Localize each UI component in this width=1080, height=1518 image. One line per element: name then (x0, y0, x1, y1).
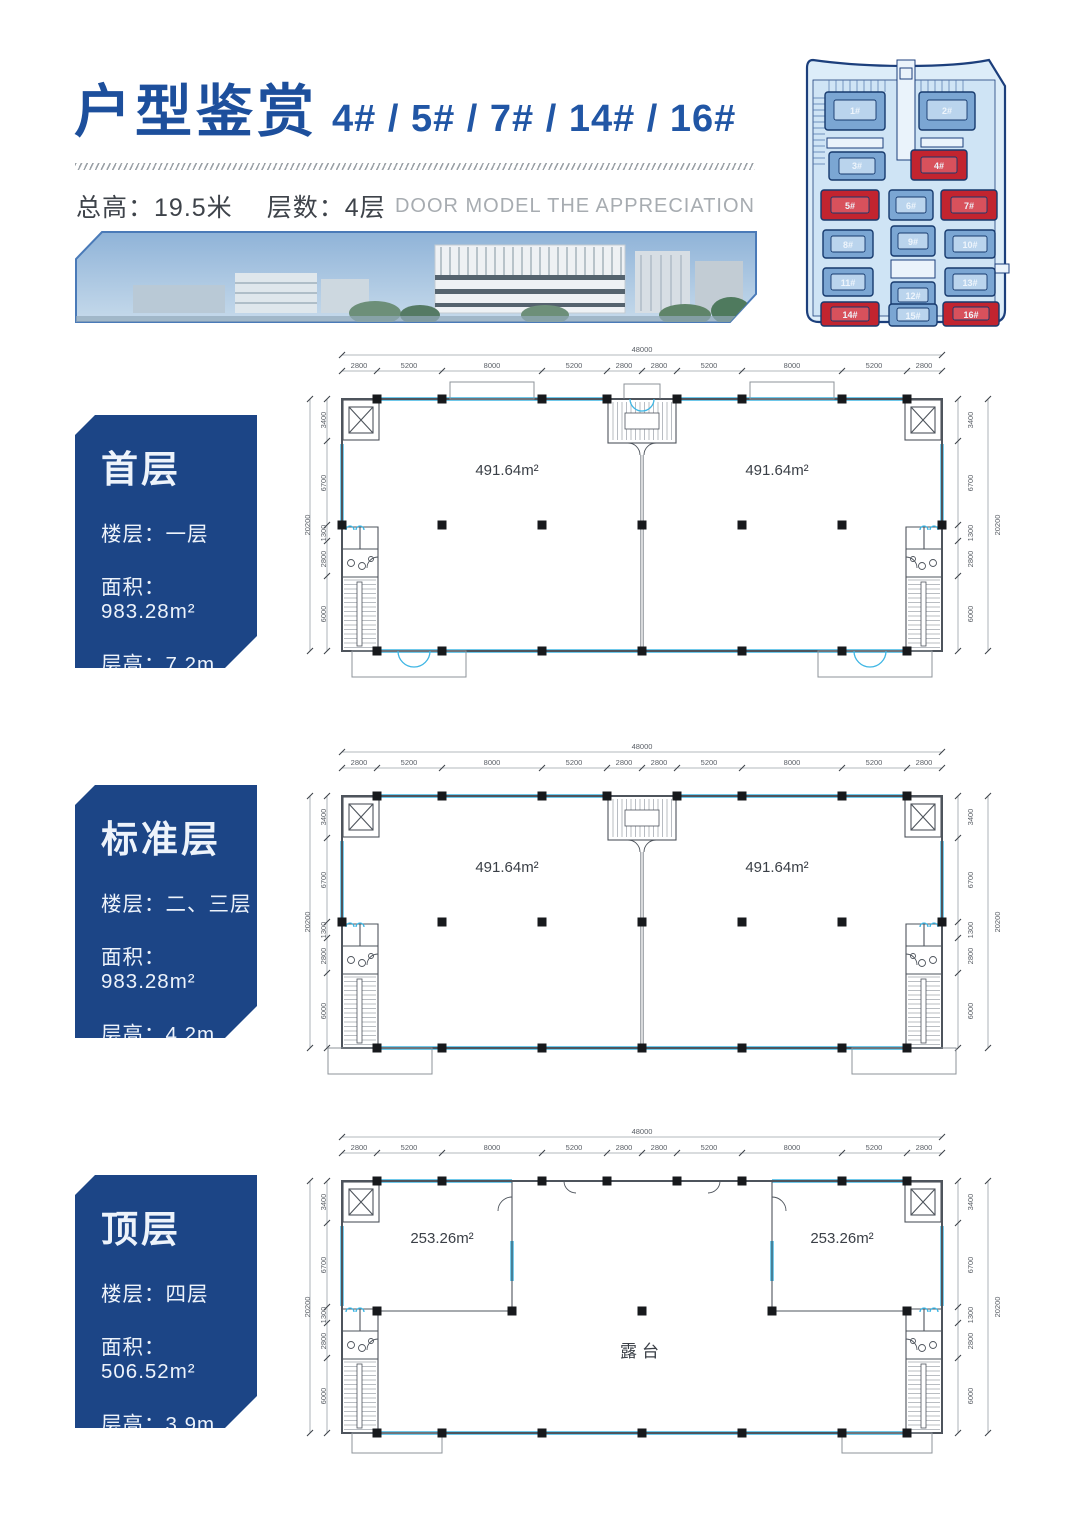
svg-text:6000: 6000 (319, 1003, 328, 1020)
columns (373, 1177, 912, 1438)
siteplan-building: 11# (823, 268, 873, 296)
svg-text:6000: 6000 (966, 1003, 975, 1020)
siteplan-building: 16# (943, 302, 999, 326)
svg-text:14#: 14# (842, 310, 857, 320)
svg-text:8000: 8000 (784, 361, 801, 370)
svg-text:48000: 48000 (632, 742, 653, 751)
svg-text:48000: 48000 (632, 1127, 653, 1136)
floor-card-standard: 标准层 楼层：二、三层 面积：983.28m² 层高：4.2m (75, 785, 257, 1038)
svg-text:8#: 8# (843, 240, 853, 250)
siteplan-building: 5# (821, 190, 879, 220)
svg-text:15#: 15# (905, 311, 920, 321)
siteplan-building: 4# (911, 150, 967, 180)
svg-text:8000: 8000 (484, 758, 501, 767)
svg-text:3400: 3400 (319, 412, 328, 429)
elevator-icon (905, 400, 941, 440)
stair-core-icon (608, 399, 676, 455)
svg-text:3#: 3# (852, 161, 862, 171)
elevator-icon (343, 400, 379, 440)
svg-text:6000: 6000 (319, 606, 328, 623)
svg-text:1300: 1300 (966, 1307, 975, 1324)
svg-text:13#: 13# (962, 278, 977, 288)
svg-text:2800: 2800 (319, 551, 328, 568)
floor-line: 楼层：四层 (101, 1277, 257, 1307)
svg-text:8000: 8000 (784, 758, 801, 767)
svg-text:9#: 9# (908, 237, 918, 247)
height-line: 层高：4.2m (101, 1017, 257, 1047)
svg-text:2800: 2800 (966, 1333, 975, 1350)
svg-text:5200: 5200 (701, 361, 718, 370)
area-line: 面积：506.52m² (101, 1330, 257, 1384)
dimensions: 48000 2800 5200 8000 5200 2800 2800 5200… (303, 345, 1002, 654)
elevator-icon (905, 1182, 941, 1222)
svg-text:5200: 5200 (401, 1143, 418, 1152)
svg-text:6000: 6000 (966, 606, 975, 623)
svg-text:2800: 2800 (966, 948, 975, 965)
floor-card-title: 首层 (101, 439, 257, 493)
siteplan-building: 8# (823, 230, 873, 258)
svg-text:2800: 2800 (319, 1333, 328, 1350)
svg-text:7#: 7# (964, 201, 974, 211)
site-plan: 1# 2# 3# 4# 5# 6# 7# 8# 9# 10# 11# 12# 1… (799, 52, 1011, 330)
plan-drawing-first: 491.64m² 491.64m² (338, 382, 947, 677)
stairs-icon (344, 976, 940, 1046)
brochure-page: 户型鉴赏 4# / 5# / 7# / 14# / 16# 总高：19.5米层数… (0, 0, 1080, 1518)
svg-text:2800: 2800 (651, 1143, 668, 1152)
floor-line: 楼层：一层 (101, 517, 257, 547)
svg-text:2#: 2# (942, 106, 952, 116)
floors-label: 层数： (267, 194, 345, 222)
dimensions: 48000 2800 5200 8000 5200 2800 2800 5200… (303, 1127, 1002, 1436)
floor-plan-first: 48000 2800 5200 8000 5200 2800 2800 5200… (296, 343, 1008, 693)
siteplan-building: 9# (891, 226, 935, 256)
svg-text:3400: 3400 (966, 412, 975, 429)
svg-text:2800: 2800 (651, 361, 668, 370)
area-line: 面积：983.28m² (101, 940, 257, 994)
unit-area-label: 491.64m² (745, 462, 808, 479)
section-divider (62, 1102, 1018, 1108)
unit-area-label: 253.26m² (810, 1230, 873, 1247)
siteplan-building: 2# (919, 92, 975, 130)
hatch-divider (75, 163, 755, 170)
dimensions: 48000 2800 5200 8000 5200 2800 2800 5200… (303, 742, 1002, 1051)
svg-text:2800: 2800 (916, 361, 933, 370)
svg-text:2800: 2800 (351, 1143, 368, 1152)
elevator-icon (905, 797, 941, 837)
svg-text:16#: 16# (963, 310, 978, 320)
svg-text:5200: 5200 (401, 361, 418, 370)
svg-text:20200: 20200 (993, 1297, 1002, 1318)
svg-text:2800: 2800 (966, 551, 975, 568)
svg-text:1#: 1# (850, 106, 860, 116)
svg-text:6000: 6000 (966, 1388, 975, 1405)
elevator-icon (343, 1182, 379, 1222)
siteplan-building: 14# (821, 302, 879, 326)
svg-text:2800: 2800 (616, 1143, 633, 1152)
stairs-icon (344, 1361, 940, 1431)
floor-card-title: 标准层 (101, 809, 257, 863)
svg-text:20200: 20200 (303, 1297, 312, 1318)
svg-text:2800: 2800 (616, 361, 633, 370)
stairs-icon (344, 579, 940, 649)
svg-text:1300: 1300 (319, 525, 328, 542)
english-subtitle: DOOR MODEL THE APPRECIATION (395, 195, 755, 218)
svg-text:8000: 8000 (484, 1143, 501, 1152)
svg-text:5#: 5# (845, 201, 855, 211)
building-meta: 总高：19.5米层数：4层 (76, 188, 386, 224)
plan-drawing-top: 253.26m² 253.26m² 露台 (342, 1177, 942, 1454)
svg-text:3400: 3400 (966, 809, 975, 826)
svg-text:6000: 6000 (319, 1388, 328, 1405)
svg-text:6700: 6700 (966, 872, 975, 889)
svg-text:5200: 5200 (866, 361, 883, 370)
svg-text:3400: 3400 (319, 809, 328, 826)
plan-drawing-standard: 491.64m² 491.64m² (328, 792, 956, 1075)
area-line: 面积：983.28m² (101, 570, 257, 624)
svg-text:2800: 2800 (916, 1143, 933, 1152)
siteplan-building: 7# (941, 190, 997, 220)
floor-card-first: 首层 楼层：一层 面积：983.28m² 层高：7.2m (75, 415, 257, 668)
siteplan-building: 6# (889, 190, 933, 220)
svg-text:2800: 2800 (319, 948, 328, 965)
unit-area-label: 491.64m² (475, 859, 538, 876)
svg-text:6700: 6700 (319, 475, 328, 492)
terrace-label: 露台 (620, 1342, 664, 1361)
building-numbers: 4# / 5# / 7# / 14# / 16# (332, 98, 736, 141)
height-line: 层高：7.2m (101, 647, 257, 677)
floor-line: 楼层：二、三层 (101, 887, 257, 917)
svg-text:2800: 2800 (351, 758, 368, 767)
project-photo (75, 231, 757, 323)
svg-text:2800: 2800 (916, 758, 933, 767)
svg-text:2800: 2800 (616, 758, 633, 767)
svg-text:10#: 10# (962, 240, 977, 250)
stair-core-icon (608, 796, 676, 852)
svg-text:1300: 1300 (966, 525, 975, 542)
svg-text:5200: 5200 (566, 758, 583, 767)
page-title: 户型鉴赏 (74, 66, 318, 148)
svg-text:20200: 20200 (993, 912, 1002, 933)
unit-area-label: 253.26m² (410, 1230, 473, 1247)
svg-text:5200: 5200 (701, 758, 718, 767)
svg-text:20200: 20200 (303, 515, 312, 536)
total-height-label: 总高： (76, 194, 154, 222)
svg-text:1300: 1300 (319, 1307, 328, 1324)
svg-text:20200: 20200 (993, 515, 1002, 536)
floor-plan-top: 48000 2800 5200 8000 5200 2800 2800 5200… (296, 1125, 1008, 1475)
svg-text:8000: 8000 (784, 1143, 801, 1152)
svg-text:20200: 20200 (303, 912, 312, 933)
svg-text:2800: 2800 (351, 361, 368, 370)
siteplan-building: 10# (945, 230, 995, 258)
svg-text:6700: 6700 (319, 1257, 328, 1274)
svg-text:4#: 4# (934, 161, 944, 171)
svg-text:48000: 48000 (632, 345, 653, 354)
svg-text:1300: 1300 (966, 922, 975, 939)
unit-area-label: 491.64m² (475, 462, 538, 479)
svg-text:11#: 11# (841, 278, 856, 288)
svg-text:3400: 3400 (966, 1194, 975, 1211)
svg-text:6700: 6700 (966, 1257, 975, 1274)
floor-plan-standard: 48000 2800 5200 8000 5200 2800 2800 5200… (296, 740, 1008, 1090)
floor-card-top: 顶层 楼层：四层 面积：506.52m² 层高：3.9m (75, 1175, 257, 1428)
siteplan-building: 3# (829, 152, 885, 180)
svg-text:5200: 5200 (566, 1143, 583, 1152)
svg-text:3400: 3400 (319, 1194, 328, 1211)
svg-text:5200: 5200 (866, 758, 883, 767)
siteplan-building: 13# (945, 268, 995, 296)
siteplan-building: 15# (889, 304, 937, 326)
unit-area-label: 491.64m² (745, 859, 808, 876)
svg-text:5200: 5200 (401, 758, 418, 767)
svg-text:5200: 5200 (701, 1143, 718, 1152)
svg-text:2800: 2800 (651, 758, 668, 767)
svg-text:6700: 6700 (319, 872, 328, 889)
floor-card-title: 顶层 (101, 1199, 257, 1253)
floors-value: 4层 (345, 194, 386, 222)
siteplan-building: 1# (825, 92, 885, 130)
svg-text:6#: 6# (906, 201, 916, 211)
svg-text:8000: 8000 (484, 361, 501, 370)
svg-text:5200: 5200 (866, 1143, 883, 1152)
height-line: 层高：3.9m (101, 1407, 257, 1437)
total-height-value: 19.5米 (154, 194, 233, 222)
svg-text:5200: 5200 (566, 361, 583, 370)
svg-text:1300: 1300 (319, 922, 328, 939)
svg-text:12#: 12# (905, 291, 920, 301)
svg-text:6700: 6700 (966, 475, 975, 492)
elevator-icon (343, 797, 379, 837)
section-divider (62, 710, 1018, 716)
